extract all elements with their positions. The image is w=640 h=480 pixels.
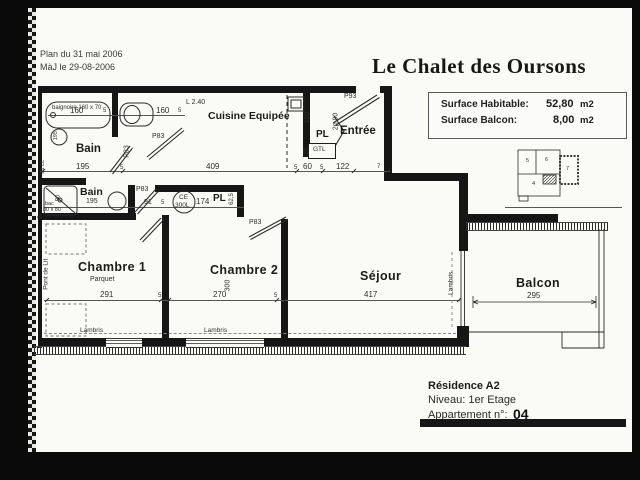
furniture-dashed-1 (46, 224, 86, 254)
door-label-2p90: 2p 90 (332, 113, 339, 131)
dim-bain2-width: 195 (86, 198, 98, 205)
room-label-bain1: Bain (76, 144, 101, 156)
room-label-chambre1: Chambre 1 (78, 261, 146, 274)
kitchen-sink-bowl (291, 100, 301, 108)
wc-bowl (124, 106, 140, 124)
lambris-label-sejour: Lambris (448, 272, 455, 295)
door-leaf-chambre1 (140, 218, 164, 242)
window-glazing-sejour-balcon (461, 251, 465, 326)
dim-tick: 5 (161, 200, 164, 206)
dim-tick: 7 (377, 164, 380, 170)
dim-pl2-depth: 62,5 (229, 193, 235, 205)
water-heater-label-1: CE (179, 195, 188, 202)
dim-basin: 195 (54, 131, 60, 140)
door-label-p83-bain1: P83 (124, 145, 131, 157)
door-label-p83-bain2: P83 (136, 186, 148, 193)
dim-chambre2-depth: 300 (224, 280, 231, 292)
room-label-bain2: Bain (80, 187, 103, 198)
dim-tick: 5 (320, 165, 323, 171)
dim-tick: 5 (294, 165, 297, 171)
dim-cuisine-width: 409 (206, 163, 219, 171)
dim-tick: 5 (178, 108, 181, 114)
floor-label-parquet: Parquet (90, 276, 115, 283)
dim-chambre2-width: 270 (213, 291, 226, 299)
door-label-p83-wc: P83 (152, 133, 164, 140)
locator-notch (519, 196, 528, 201)
window-glazing-chambre1 (106, 341, 142, 344)
dim-baignoire: 160 (70, 107, 83, 115)
plan-vector-layer (0, 0, 640, 480)
room-label-chambre2: Chambre 2 (210, 264, 278, 277)
dim-sejour-width: 417 (364, 291, 377, 299)
shower-label-2: 80 x 80 (43, 208, 61, 214)
locator-stairwell (543, 175, 556, 184)
dim-tick: 5 (158, 293, 161, 299)
room-label-sejour: Séjour (360, 270, 401, 283)
pont-de-lit-label: Pont de Lit (43, 259, 50, 290)
washer-hookup-label: ad LL (41, 160, 47, 174)
door-label-p93: P93 (344, 93, 356, 100)
locator-unit-5: 5 (526, 159, 529, 165)
scanned-floor-plan-sheet: Plan du 31 mai 2006 MàJ le 29-08-2006 Le… (0, 0, 640, 480)
dim-bain1-width: 195 (76, 163, 89, 171)
dim-balcon-width: 295 (527, 292, 540, 300)
dim-hall2: 91 (144, 199, 152, 206)
gtl-label: GTL (313, 147, 326, 154)
footer-rule (420, 419, 626, 427)
dim-hall: 60 (303, 163, 312, 171)
dim-pl2-width: 174 (196, 198, 209, 206)
dim-gtl: 25 (303, 148, 309, 155)
door-label-p83-ch2: P83 (249, 219, 261, 226)
locator-outline (518, 150, 560, 196)
dim-chambre1-width: 291 (100, 291, 113, 299)
room-label-pl-ch2: PL (213, 194, 226, 204)
dim-pl-depth: 110 (304, 112, 311, 123)
room-label-entree: Entrée (340, 126, 376, 138)
locator-unit-4: 4 (532, 182, 535, 188)
room-label-balcon: Balcon (516, 277, 560, 290)
room-label-cuisine: Cuisine Equipée (208, 111, 290, 122)
dim-entree-width: 122 (336, 163, 349, 171)
washbasin-bain2 (108, 192, 126, 210)
dim-tick: 5 (120, 165, 123, 171)
water-heater-label-2: 300L (175, 203, 189, 210)
room-label-pl-entree: PL (316, 130, 329, 140)
kitchen-sink (288, 97, 304, 111)
locator-unit-6: 6 (545, 158, 548, 164)
locator-unit-7: 7 (566, 167, 569, 173)
dim-wc: 160 (156, 107, 169, 115)
residence-label: Résidence A2 (428, 381, 500, 392)
dim-shower: 80 (55, 195, 61, 202)
dim-tick: 5 (103, 108, 106, 114)
dim-tick: 5 (274, 293, 277, 299)
lambris-label-ch2: Lambris (204, 328, 227, 335)
niveau-label: Niveau: 1er Etage (428, 395, 516, 406)
bathtub-drain (51, 113, 56, 118)
window-glazing-chambre2 (186, 341, 264, 344)
dim-l240: L 2.40 (186, 99, 205, 106)
dim-tick: 5 (38, 215, 44, 218)
lambris-label-ch1: Lambris (80, 328, 103, 335)
